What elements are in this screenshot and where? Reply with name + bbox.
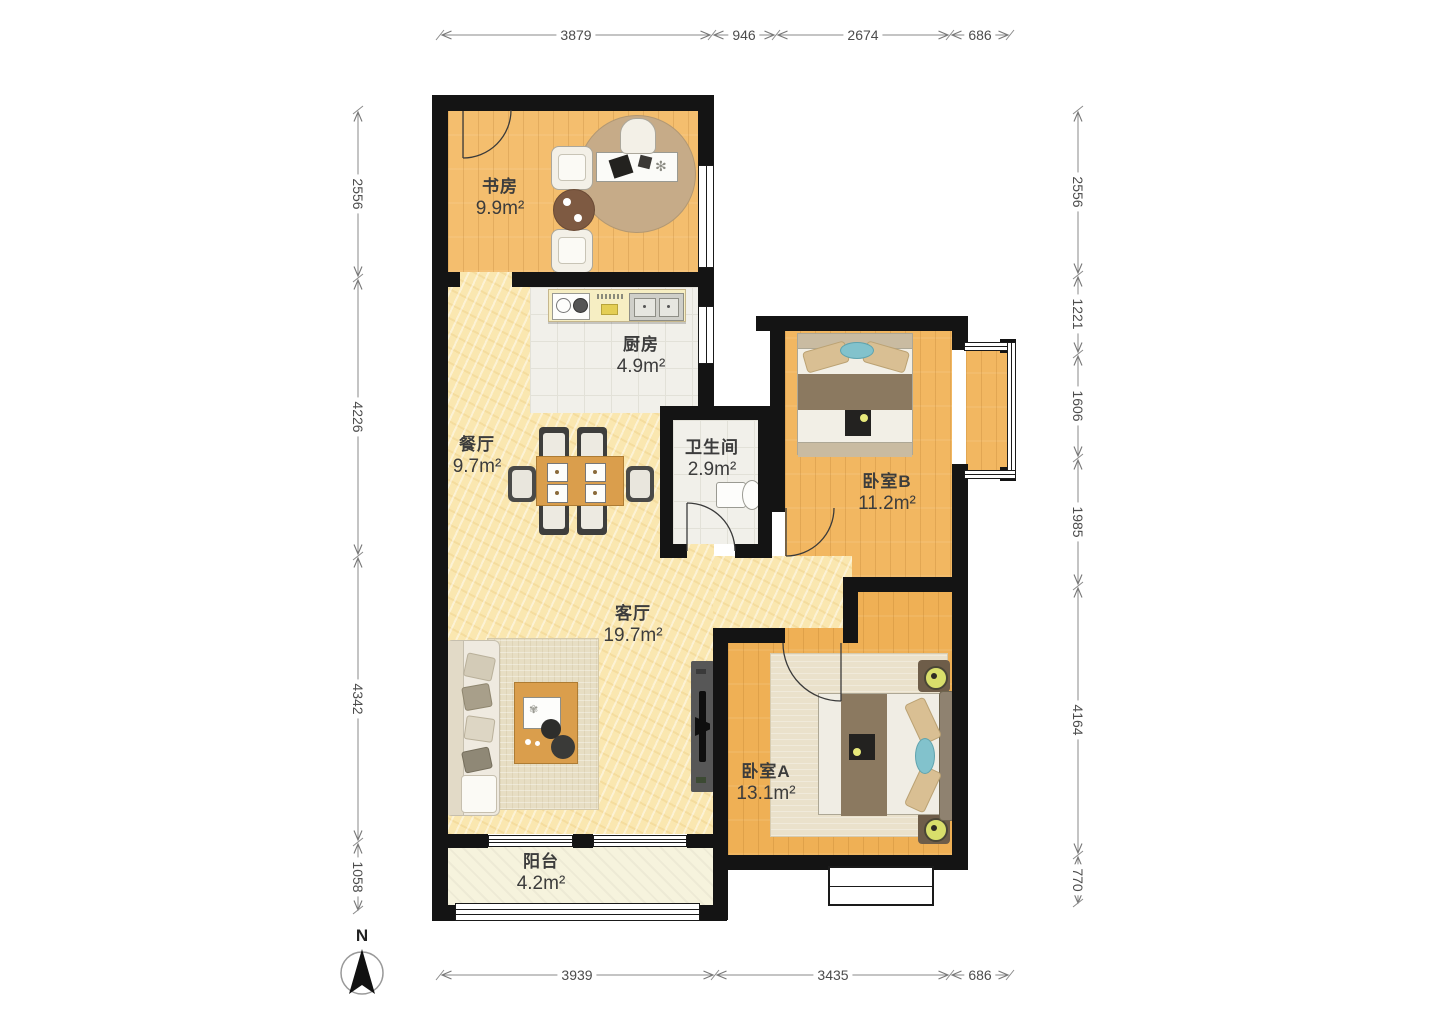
room-label-living: 客厅19.7m² (603, 603, 662, 648)
bedroom-a-door (783, 643, 841, 701)
door-arcs (0, 0, 1440, 1024)
north-label: N (356, 926, 368, 946)
dimension-label: 1985 (1070, 502, 1086, 541)
dimension-label: 770 (1070, 864, 1086, 895)
dimension-label: 3939 (557, 967, 596, 983)
bathroom-door (687, 503, 735, 551)
room-label-bathroom: 卫生间2.9m² (685, 437, 739, 482)
dimension-label: 2674 (843, 27, 882, 43)
dimension-label: 4342 (350, 679, 366, 718)
dimension-label: 4164 (1070, 700, 1086, 739)
dimension-label: 4226 (350, 397, 366, 436)
dimension-label: 686 (964, 967, 995, 983)
bedroom-b-door (786, 508, 834, 556)
room-label-balcony: 阳台4.2m² (517, 851, 566, 896)
dimension-label: 1058 (350, 857, 366, 896)
room-label-bedroom-a: 卧室A13.1m² (736, 761, 795, 806)
dimension-label: 2556 (350, 174, 366, 213)
dimension-label: 3879 (556, 27, 595, 43)
floorplan-canvas: 3879 946 2674 686 3939 3435 686 2556 422… (0, 0, 1440, 1024)
dimension-label: 2556 (1070, 172, 1086, 211)
dimension-label: 1606 (1070, 386, 1086, 425)
dimension-label: 3435 (813, 967, 852, 983)
dimension-label: 1221 (1070, 294, 1086, 333)
room-label-study: 书房9.9m² (476, 176, 525, 221)
dimension-label: 686 (964, 27, 995, 43)
dimension-label: 946 (728, 27, 759, 43)
room-label-dining: 餐厅9.7m² (453, 434, 502, 479)
room-label-kitchen: 厨房4.9m² (617, 334, 666, 379)
entry-door (463, 110, 511, 158)
room-label-bedroom-b: 卧室B11.2m² (858, 471, 916, 516)
